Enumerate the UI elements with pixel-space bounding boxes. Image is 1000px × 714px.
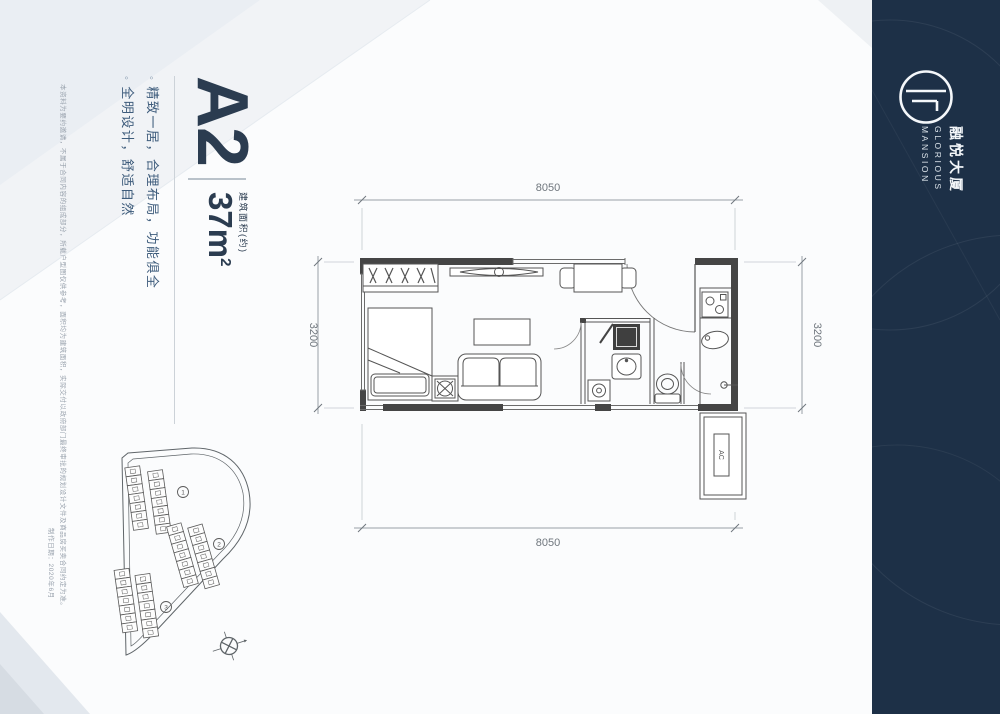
kitchen-door-arc bbox=[681, 364, 711, 394]
dimension-left bbox=[314, 256, 354, 414]
dim-top-label: 8050 bbox=[536, 182, 560, 194]
tv-console bbox=[450, 268, 543, 277]
sofa bbox=[458, 354, 541, 400]
title-divider bbox=[188, 178, 246, 180]
building-label-3: 3 bbox=[161, 602, 172, 613]
washing-machine bbox=[588, 380, 610, 401]
kitchen-sink bbox=[700, 329, 730, 350]
bath-door-arc bbox=[554, 322, 581, 349]
dimension-right bbox=[744, 256, 806, 414]
building-label-2: 2 bbox=[214, 539, 225, 550]
floor-plan: 8050 8050 3200 3200 bbox=[298, 172, 823, 572]
coffee-table bbox=[474, 319, 530, 345]
dim-right-label: 3200 bbox=[811, 323, 823, 347]
dimension-bottom bbox=[354, 424, 743, 532]
building-block-1 bbox=[125, 463, 171, 537]
bed bbox=[368, 308, 432, 400]
dim-left-label: 3200 bbox=[307, 323, 319, 347]
title-rule bbox=[174, 76, 175, 424]
production-date-text: 制作日期：2020年6月 bbox=[47, 528, 57, 648]
wardrobe bbox=[363, 264, 438, 292]
area-value: 37m2 bbox=[202, 192, 237, 266]
svg-text:1: 1 bbox=[181, 490, 185, 497]
brand-name-en-2: MANSION bbox=[920, 126, 930, 222]
unit-title-block: A2 建筑面积(约) 37m2 ◦精致一居，合理布局，功能俱全 ◦全明设计，舒适… bbox=[94, 76, 252, 430]
toilet bbox=[655, 374, 680, 403]
compass-icon bbox=[212, 629, 248, 665]
dining-table bbox=[560, 264, 636, 292]
feature-line-2: ◦全明设计，舒适自然 bbox=[114, 76, 139, 430]
building-block-3 bbox=[114, 566, 159, 641]
building-block-2 bbox=[167, 517, 220, 594]
ac-label: AC bbox=[717, 450, 724, 460]
unit-code: A2 bbox=[190, 76, 252, 166]
svg-text:2: 2 bbox=[217, 542, 221, 549]
kitchen-stove bbox=[702, 292, 728, 317]
washbasin bbox=[612, 354, 641, 379]
dim-bottom-label: 8050 bbox=[536, 537, 560, 549]
brochure-page: 本资料为要约邀请，不属于合同内容的组成部分，所载户型图仅供参考，面积均为建筑面积… bbox=[0, 0, 1000, 714]
shower bbox=[600, 324, 640, 350]
brand-logo-icon bbox=[897, 68, 955, 126]
nightstand bbox=[432, 376, 458, 401]
svg-text:3: 3 bbox=[164, 605, 168, 612]
brand-name-cn: 融悦大厦 bbox=[946, 126, 966, 222]
unit-title-row: A2 建筑面积(约) 37m2 bbox=[188, 76, 252, 430]
site-plan: 1 2 3 bbox=[95, 440, 280, 665]
brand-name-en-1: GLORIOUS bbox=[933, 126, 943, 222]
building-label-1: 1 bbox=[178, 487, 189, 498]
feature-line-1: ◦精致一居，合理布局，功能俱全 bbox=[140, 76, 165, 430]
disclaimer-text: 本资料为要约邀请，不属于合同内容的组成部分，所载户型图仅供参考，面积均为建筑面积… bbox=[57, 84, 69, 644]
dimension-top bbox=[354, 196, 743, 250]
area-group: 建筑面积(约) 37m2 bbox=[202, 192, 250, 266]
brand-wordmark: 融悦大厦 GLORIOUS MANSION bbox=[920, 126, 966, 222]
bullet-icon: ◦ bbox=[145, 76, 157, 81]
bullet-icon: ◦ bbox=[120, 76, 132, 81]
